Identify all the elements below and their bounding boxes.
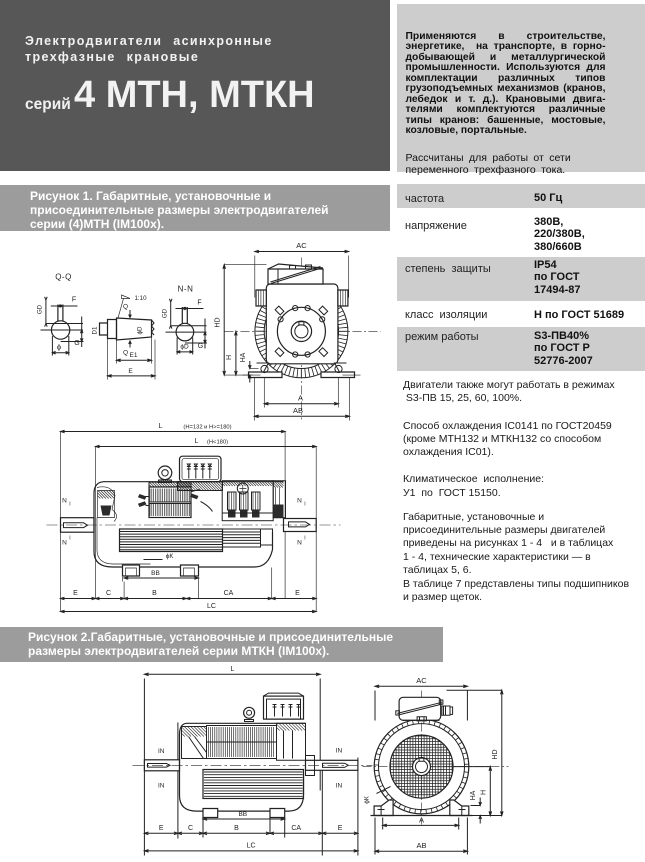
- svg-text:CA: CA: [224, 590, 234, 597]
- svg-text:E: E: [73, 590, 78, 597]
- svg-text:GD: GD: [162, 308, 169, 318]
- svg-text:AB: AB: [293, 406, 303, 415]
- svg-text:AC: AC: [416, 676, 427, 685]
- svg-text:L: L: [231, 666, 235, 673]
- svg-text:L: L: [159, 423, 163, 430]
- svg-text:GD: GD: [37, 304, 44, 314]
- svg-text:E: E: [295, 590, 300, 597]
- svg-text:IN: IN: [158, 748, 165, 755]
- svg-text:E1: E1: [130, 352, 138, 359]
- svg-text:1:10: 1:10: [134, 295, 147, 302]
- svg-text:N: N: [297, 540, 302, 547]
- svg-text:Q: Q: [123, 304, 128, 311]
- svg-text:LC: LC: [207, 603, 216, 610]
- svg-text:A: A: [298, 394, 303, 403]
- svg-text:Q-Q: Q-Q: [55, 273, 72, 282]
- svg-text:AB: AB: [416, 841, 426, 850]
- svg-text:ϕК: ϕК: [166, 553, 174, 560]
- svg-text:B: B: [152, 590, 157, 597]
- svg-text:L: L: [195, 438, 199, 445]
- svg-text:IN: IN: [336, 783, 343, 790]
- svg-text:N: N: [62, 498, 67, 505]
- svg-text:ϕD: ϕD: [180, 344, 189, 351]
- svg-text:BB: BB: [238, 811, 247, 818]
- svg-text:D1: D1: [92, 326, 99, 334]
- svg-text:E: E: [159, 825, 164, 832]
- svg-text:N: N: [297, 498, 302, 505]
- svg-text:IN: IN: [158, 783, 165, 790]
- svg-text:IN: IN: [336, 748, 343, 755]
- svg-text:E: E: [128, 368, 133, 375]
- svg-text:H: H: [481, 790, 488, 795]
- svg-text:N-N: N-N: [178, 285, 194, 294]
- svg-text:C: C: [106, 590, 111, 597]
- svg-text:E: E: [338, 825, 343, 832]
- svg-text:LC: LC: [247, 843, 256, 850]
- svg-text:BB: BB: [151, 570, 160, 577]
- svg-text:CA: CA: [291, 825, 301, 832]
- svg-text:(H<180): (H<180): [207, 439, 228, 445]
- svg-text:F: F: [197, 300, 201, 307]
- svg-text:C: C: [188, 825, 193, 832]
- svg-text:I: I: [69, 502, 70, 508]
- svg-text:G: G: [198, 343, 203, 350]
- svg-text:B: B: [234, 825, 239, 832]
- svg-text:A: A: [419, 816, 424, 825]
- svg-text:F: F: [72, 297, 76, 304]
- svg-text:I: I: [304, 502, 305, 508]
- svg-text:Q: Q: [123, 350, 128, 357]
- svg-text:HD: HD: [215, 317, 222, 327]
- svg-text:G: G: [74, 340, 79, 347]
- svg-text:I: I: [304, 536, 305, 542]
- svg-text:AC: AC: [296, 241, 307, 250]
- svg-text:ϕD: ϕD: [137, 326, 144, 334]
- svg-text:N: N: [62, 540, 67, 547]
- svg-text:HA: HA: [470, 790, 477, 800]
- svg-text:I: I: [69, 536, 70, 542]
- svg-text:(H=132 и H>=180): (H=132 и H>=180): [183, 424, 231, 430]
- svg-text:HA: HA: [240, 352, 247, 362]
- svg-text:H: H: [226, 355, 233, 360]
- svg-text:ϕК: ϕК: [364, 796, 371, 804]
- svg-text:HD: HD: [492, 749, 499, 759]
- svg-text:ϕ: ϕ: [57, 343, 61, 352]
